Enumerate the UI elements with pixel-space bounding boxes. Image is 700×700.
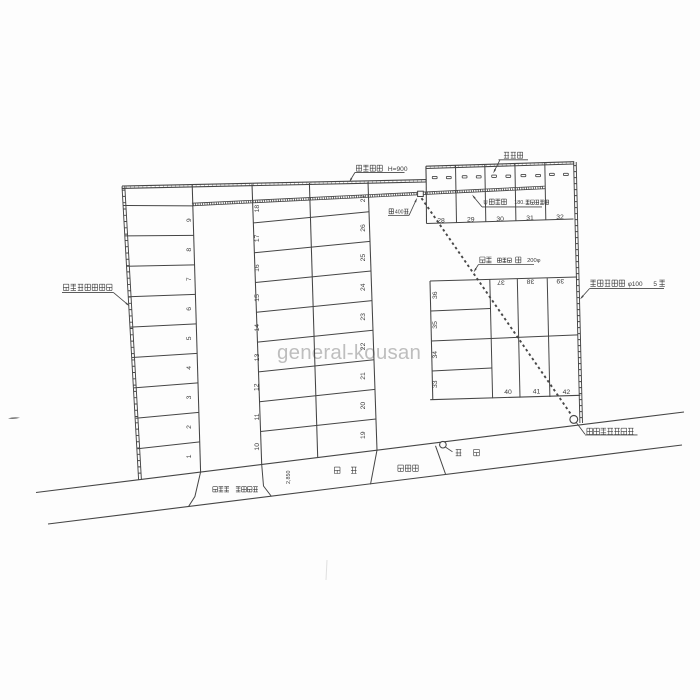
svg-text:16: 16 xyxy=(254,264,261,272)
svg-text:33: 33 xyxy=(432,380,439,388)
svg-text:general-kousan: general-kousan xyxy=(277,341,421,364)
svg-text:5: 5 xyxy=(186,336,193,340)
svg-text:20: 20 xyxy=(360,402,367,410)
svg-text:25: 25 xyxy=(360,254,367,262)
svg-text:19: 19 xyxy=(360,431,367,439)
svg-text:30: 30 xyxy=(496,216,504,223)
svg-text:29: 29 xyxy=(467,217,475,224)
svg-text:28: 28 xyxy=(437,217,445,224)
svg-text:H=900: H=900 xyxy=(388,166,408,173)
svg-text:39: 39 xyxy=(556,277,564,284)
svg-text:400: 400 xyxy=(395,209,404,215)
svg-text:3: 3 xyxy=(186,395,193,399)
svg-text:22: 22 xyxy=(360,342,367,350)
svg-text:23: 23 xyxy=(360,313,367,321)
svg-text:21: 21 xyxy=(360,372,367,380)
svg-text:13: 13 xyxy=(254,353,261,361)
svg-text:U: U xyxy=(483,200,487,206)
svg-text:7: 7 xyxy=(186,277,193,281)
svg-text:32: 32 xyxy=(556,214,564,221)
svg-text:9: 9 xyxy=(186,218,193,222)
svg-text:38: 38 xyxy=(526,278,534,285)
svg-text:42: 42 xyxy=(563,389,571,396)
svg-text:1: 1 xyxy=(186,454,193,458)
svg-text:φ100: φ100 xyxy=(628,281,643,288)
svg-text:24: 24 xyxy=(360,283,367,291)
svg-text:17: 17 xyxy=(254,234,261,242)
svg-text:2: 2 xyxy=(186,425,193,429)
svg-text:4: 4 xyxy=(186,366,193,370)
svg-text:180.: 180. xyxy=(514,200,525,206)
svg-text:200φ: 200φ xyxy=(527,258,541,264)
svg-text:41: 41 xyxy=(533,388,541,395)
svg-text:37: 37 xyxy=(497,279,505,286)
svg-text:36: 36 xyxy=(432,291,439,299)
svg-text:8: 8 xyxy=(186,248,193,252)
svg-text:40: 40 xyxy=(504,389,512,396)
svg-text:34: 34 xyxy=(432,351,439,359)
svg-text:18: 18 xyxy=(254,205,261,213)
svg-text:12: 12 xyxy=(254,383,261,391)
svg-text:14: 14 xyxy=(254,324,261,332)
svg-text:11: 11 xyxy=(254,413,261,420)
svg-text:35: 35 xyxy=(432,321,439,329)
svg-text:5: 5 xyxy=(653,281,657,288)
svg-text:27: 27 xyxy=(360,194,367,202)
svg-text:31: 31 xyxy=(526,215,534,222)
svg-text:6: 6 xyxy=(186,307,193,311)
svg-text:15: 15 xyxy=(254,294,261,302)
svg-text:26: 26 xyxy=(360,224,367,232)
svg-text:10: 10 xyxy=(254,443,261,451)
svg-text:2,850: 2,850 xyxy=(286,470,292,484)
